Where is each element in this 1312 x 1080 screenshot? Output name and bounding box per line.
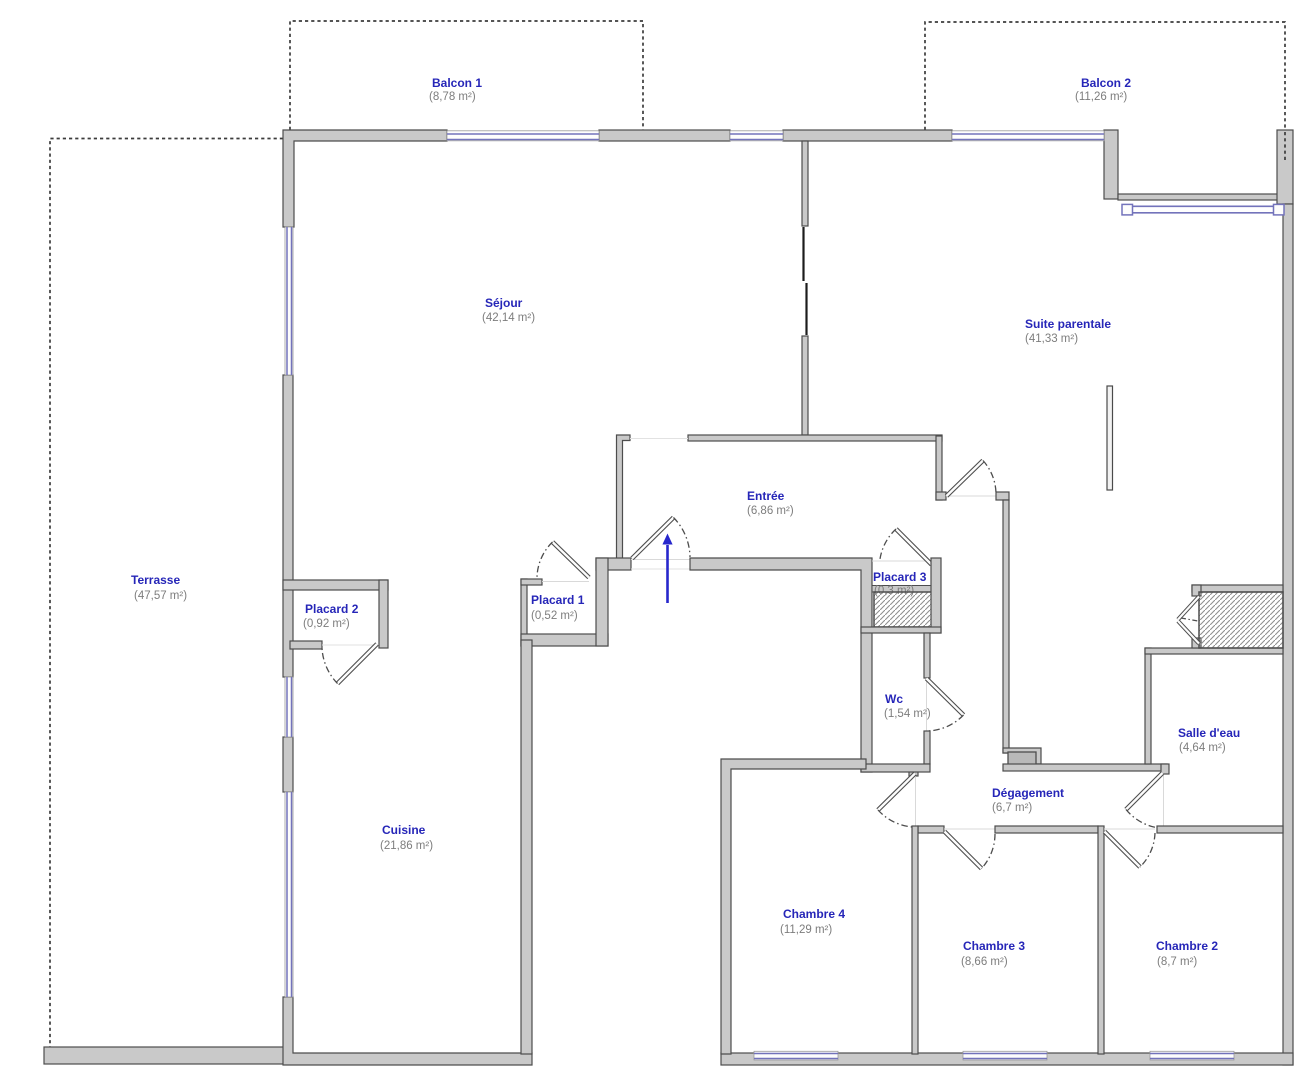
svg-text:(8,66 m²): (8,66 m²) <box>961 956 1008 968</box>
svg-text:(42,14 m²): (42,14 m²) <box>482 312 535 324</box>
svg-text:Cuisine: Cuisine <box>382 823 426 837</box>
svg-text:(1,54 m²): (1,54 m²) <box>884 708 931 720</box>
svg-text:(8,78 m²): (8,78 m²) <box>429 91 476 103</box>
svg-text:(8,7 m²): (8,7 m²) <box>1157 956 1197 968</box>
svg-text:(6,7 m²): (6,7 m²) <box>992 802 1032 814</box>
svg-text:Suite parentale: Suite parentale <box>1025 317 1111 331</box>
svg-text:(0,92 m²): (0,92 m²) <box>303 618 350 630</box>
svg-text:Dégagement: Dégagement <box>992 786 1064 800</box>
svg-text:Balcon 1: Balcon 1 <box>432 76 482 90</box>
svg-text:(0,52 m²): (0,52 m²) <box>531 610 578 622</box>
svg-text:Wc: Wc <box>885 692 903 706</box>
svg-text:Chambre 4: Chambre 4 <box>783 907 845 921</box>
svg-text:(4,64 m²): (4,64 m²) <box>1179 742 1226 754</box>
svg-text:(11,29 m²): (11,29 m²) <box>780 924 832 936</box>
svg-text:Séjour: Séjour <box>485 296 523 310</box>
svg-text:(47,57 m²): (47,57 m²) <box>134 590 187 602</box>
svg-text:Balcon 2: Balcon 2 <box>1081 76 1131 90</box>
svg-text:Terrasse: Terrasse <box>131 573 180 587</box>
svg-text:Chambre 3: Chambre 3 <box>963 939 1025 953</box>
svg-text:Entrée: Entrée <box>747 489 785 503</box>
svg-text:Chambre 2: Chambre 2 <box>1156 939 1218 953</box>
svg-text:(41,33 m²): (41,33 m²) <box>1025 333 1078 345</box>
svg-text:Salle d'eau: Salle d'eau <box>1178 726 1240 740</box>
svg-text:(21,86 m²): (21,86 m²) <box>380 840 433 852</box>
svg-text:Placard 3: Placard 3 <box>873 570 927 584</box>
svg-text:Placard 2: Placard 2 <box>305 602 359 616</box>
svg-text:(6,86 m²): (6,86 m²) <box>747 505 794 517</box>
svg-text:Placard 1: Placard 1 <box>531 593 585 607</box>
svg-text:(11,26 m²): (11,26 m²) <box>1075 91 1127 103</box>
